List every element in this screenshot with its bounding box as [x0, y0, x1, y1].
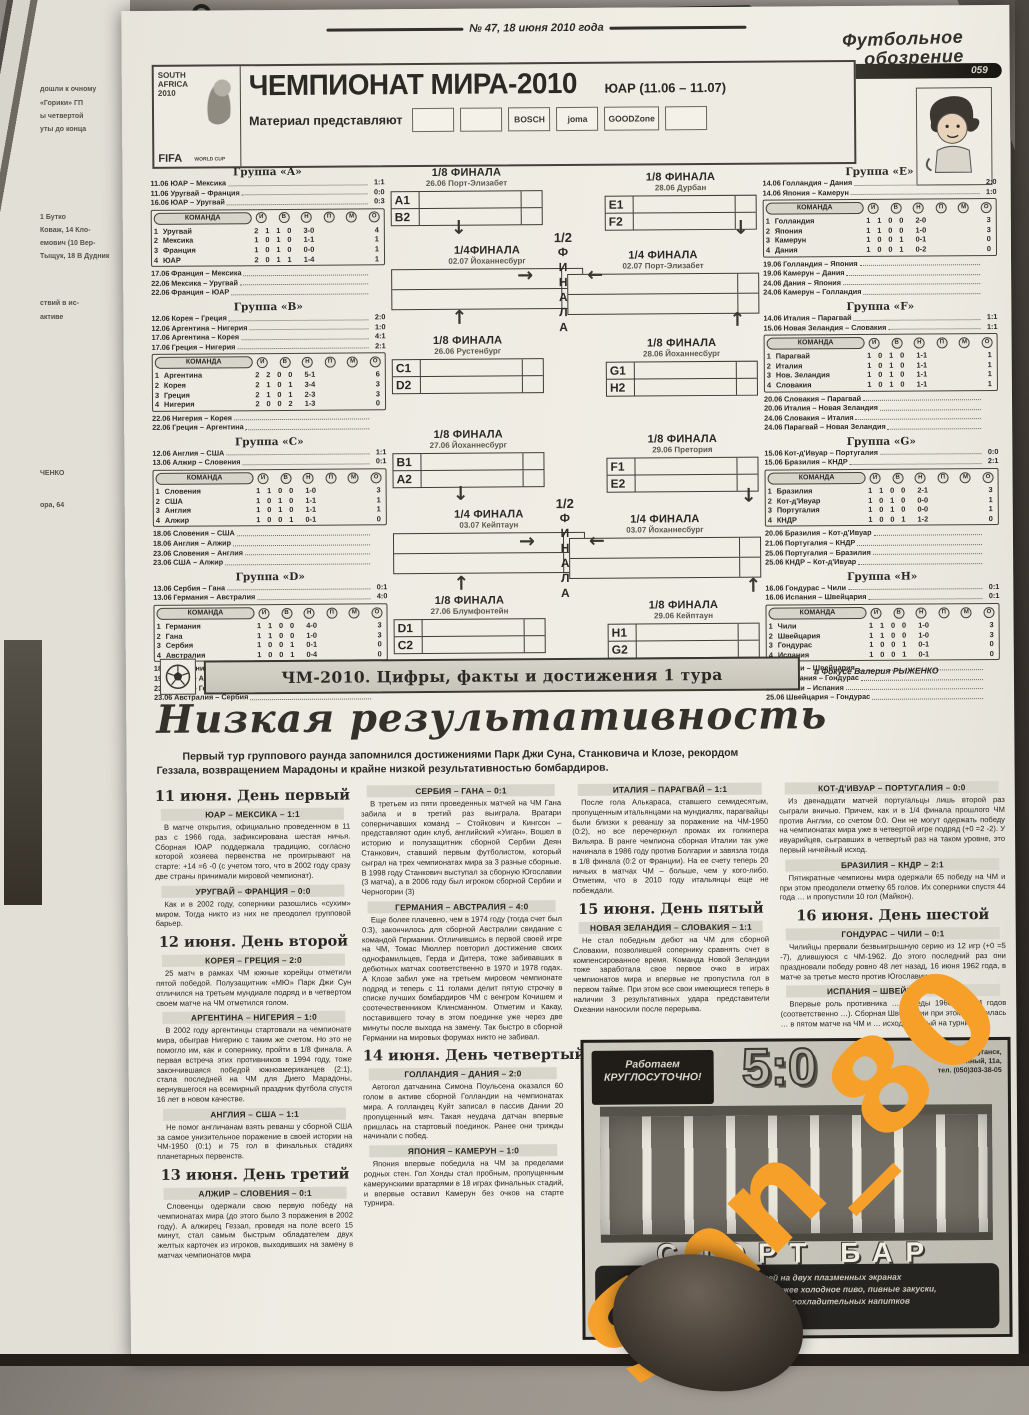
wins: 1 — [264, 486, 275, 496]
draws: 0 — [885, 225, 896, 235]
goal-difference: 1-1 — [908, 360, 936, 370]
stat-column-header: И — [869, 337, 880, 348]
bracket-slot-row: C2 — [395, 636, 545, 653]
masthead-box: SOUTH AFRICA 2010 FIFA WORLD CUP ЧЕМПИОН… — [152, 60, 857, 169]
team-rank: 1 — [766, 217, 775, 227]
article-intro: Первый тур группового раунда запомнился … — [156, 747, 766, 778]
team-rank: 1 — [154, 227, 163, 237]
goal-difference: 0-1 — [298, 640, 326, 650]
points: 3 — [935, 225, 994, 235]
article-column-2: СЕРБИЯ – ГАНА – 0:1 В третьем из пяти пр… — [361, 780, 564, 1259]
team-rank: 2 — [157, 631, 166, 641]
wins: 1 — [262, 226, 273, 236]
dotted-leader — [872, 698, 983, 700]
block-heading: СЕРБИЯ – ГАНА – 0:1 — [367, 784, 555, 797]
draws: 1 — [886, 351, 897, 361]
fixture-teams: Португалия – Бразилия — [785, 548, 871, 558]
block-heading: 16 июня. День шестой — [780, 906, 1006, 925]
draws: 1 — [886, 380, 897, 390]
group-section: Группа «А» 11.06 ЮАР – Мексика 1:1 11.06… — [150, 165, 385, 298]
standings-row: 4 Испания 1 0 0 1 0-1 0 — [769, 649, 997, 660]
sponsor-logo — [412, 108, 454, 132]
dotted-leader — [246, 428, 370, 430]
goal-difference: 1-3 — [296, 399, 324, 409]
draws: 0 — [274, 399, 285, 409]
goal-difference: 2-1 — [909, 485, 937, 495]
fixture-teams: Словения – Англия — [173, 548, 243, 558]
round-date-city: 26.06 Рустенбург — [392, 346, 544, 357]
dotted-leader — [860, 264, 980, 266]
match-date: 13.06 — [153, 593, 173, 603]
draws: 0 — [276, 640, 287, 650]
right-arrow-icon: → — [519, 530, 535, 552]
match-score: 4:1 — [371, 331, 386, 341]
slot-team-cell — [635, 362, 737, 379]
left-page-text-fragment: ЧЕНКО — [40, 468, 128, 479]
goal-difference: 2-0 — [907, 216, 935, 226]
knockout-bracket: 1/8 ФИНАЛА 26.06 Порт-Элизабет A1 B2 1/4… — [390, 163, 762, 674]
games-played: 2 — [252, 370, 263, 380]
team-column-header: КОМАНДА — [156, 472, 254, 485]
draws: 0 — [885, 216, 896, 226]
standings-header: КОМАНДА ИВНПМО — [768, 471, 996, 485]
match-teams: Корея – Греция — [171, 313, 226, 323]
block-heading: 11 июня. День первый — [155, 787, 350, 805]
stat-column-header: И — [258, 473, 269, 484]
slot-label: F1 — [607, 459, 635, 475]
fixture-teams: США – Алжир — [173, 558, 223, 568]
wins: 1 — [263, 380, 274, 390]
team-rank: 1 — [157, 622, 166, 632]
fixture-date: 18.06 — [153, 529, 173, 539]
fixture-teams: КНДР – Кот-д'Ивуар — [785, 557, 856, 567]
games-played: 2 — [252, 399, 263, 409]
block-body: Как и в 2002 году, соперники разошлись «… — [156, 898, 351, 929]
round-label: 1/8 ФИНАЛА — [606, 433, 758, 446]
stat-column-header: И — [258, 608, 269, 619]
wins: 0 — [875, 370, 886, 380]
logo-worldcup: WORLD CUP — [194, 156, 225, 162]
block-body: Япония впервые победила на ЧМ за предела… — [364, 1158, 564, 1208]
points: 0 — [937, 514, 996, 524]
draws: 1 — [887, 505, 898, 515]
games-played: 1 — [254, 631, 265, 641]
slot-team-cell — [421, 376, 523, 393]
block-heading: ГЕРМАНИЯ – АВСТРАЛИЯ – 4:0 — [368, 900, 556, 913]
stat-column-header: О — [983, 607, 994, 618]
points: 1 — [325, 495, 384, 505]
losses: 0 — [898, 495, 909, 505]
losses: 0 — [898, 505, 909, 515]
standings-table: КОМАНДА ИВНПМО 1 Уругвай 2 1 1 0 3-0 — [151, 208, 385, 267]
slot-team-cell — [568, 294, 738, 314]
points: 1 — [936, 350, 995, 360]
fixture-date: 20.06 — [765, 529, 785, 539]
points: 1 — [323, 254, 382, 264]
article-block: ЯПОНИЯ – КАМЕРУН – 1:0 Япония впервые по… — [363, 1144, 563, 1208]
team-name: Парагвай — [776, 351, 864, 361]
author-credit: в Фокусе Валерия РЫЖЕНКО — [814, 665, 994, 676]
rule-line — [610, 25, 747, 29]
round-date-city: 28.06 Йоханнесбург — [606, 349, 758, 360]
left-page-text-fragment: дошли к очному — [40, 84, 128, 95]
goal-difference: 0-1 — [910, 640, 938, 650]
slot-score-cell — [524, 470, 544, 486]
goal-difference: 0-1 — [297, 515, 325, 525]
goal-difference: 3-4 — [296, 380, 324, 390]
slot-label: E2 — [608, 476, 636, 492]
standings-header: КОМАНДА ИВНПМО — [155, 356, 383, 370]
stat-column-header: Н — [914, 337, 925, 348]
draws: 0 — [276, 631, 287, 641]
round-date-city: 29.06 Кейптаун — [608, 611, 760, 622]
fixture-teams: Парагвай – Новая Зеландия — [784, 422, 886, 432]
team-rank: 3 — [155, 390, 164, 400]
games-played: 1 — [865, 515, 876, 525]
article-block: УРУГВАЙ – ФРАНЦИЯ – 0:0 Как и в 2002 год… — [155, 884, 351, 929]
draws: 0 — [276, 650, 287, 660]
losses: 0 — [897, 351, 908, 361]
team-rank: 3 — [156, 506, 165, 516]
left-arrow-icon: ← — [587, 264, 603, 286]
standings-table: КОМАНДА ИВНПМО 1 Бразилия 1 1 0 0 2-1 — [765, 468, 999, 527]
stat-column-header: Н — [301, 212, 312, 223]
points: 6 — [324, 370, 383, 380]
slot-team-cell — [420, 191, 522, 208]
match-result-row: 15.06 Бразилия – КНДР 2:1 — [764, 456, 998, 467]
team-rank: 4 — [766, 246, 775, 256]
round-label: 1/8 ФИНАЛА — [606, 337, 758, 350]
match-score: 1:1 — [982, 312, 997, 322]
slot-team-cell — [421, 359, 523, 376]
wins: 0 — [877, 650, 888, 660]
match-date: 12.06 — [152, 449, 172, 459]
match-teams: Новая Зеландия – Словакия — [783, 322, 886, 332]
team-rank: 1 — [768, 487, 777, 497]
fixture-date: 25.06 — [765, 558, 785, 568]
standings-header: КОМАНДА ИВНПМО — [156, 471, 384, 485]
wins: 0 — [876, 515, 887, 525]
block-body: В третьем из пяти проведенных матчей на … — [361, 798, 562, 897]
dotted-leader — [861, 679, 983, 681]
team-name: Корея — [164, 380, 252, 390]
draws: 1 — [273, 245, 284, 255]
team-rank: 1 — [769, 622, 778, 632]
games-played: 2 — [252, 390, 263, 400]
fixture-date: 19.06 — [763, 259, 783, 269]
fixture-teams: Голландия – Япония — [783, 259, 858, 269]
groups-column-right: Группа «Е» 14.06 Голландия – Дания 2:0 1… — [762, 165, 1000, 706]
article-block: 13 июня. День третий — [157, 1165, 352, 1183]
bracket-block: 1/8 ФИНАЛА 28.06 Йоханнесбург G1 H2 — [606, 337, 758, 397]
match-teams: Италия – Парагвай — [783, 313, 851, 323]
losses: 0 — [897, 360, 908, 370]
wins: 1 — [874, 216, 885, 226]
wins: 0 — [874, 235, 885, 245]
games-played: 1 — [863, 235, 874, 245]
team-name: Италия — [776, 361, 864, 371]
article-block: 14 июня. День четвертый — [363, 1046, 563, 1064]
fixture-date: 22.06 — [152, 413, 172, 423]
round-date-city: 27.06 Йоханнесбург — [392, 440, 544, 451]
bracket-block: 1/8 ФИНАЛА 29.06 Кейптаун H1 G2 — [607, 599, 759, 659]
dotted-leader — [857, 544, 982, 546]
team-rank: 2 — [156, 496, 165, 506]
team-rank: 4 — [155, 400, 164, 410]
fixture-teams: Словения – США — [173, 529, 235, 539]
round-date-city: 28.06 Дурбан — [605, 183, 757, 194]
article-block: БРАЗИЛИЯ – КНДР – 2:1 Пятикратные чемпио… — [780, 858, 1006, 903]
losses: 0 — [284, 235, 295, 245]
games-played: 1 — [863, 226, 874, 236]
slot-score-cell — [736, 196, 756, 212]
dotted-leader — [888, 428, 982, 430]
block-body: 25 матч в рамках ЧМ южные корейцы отмети… — [156, 968, 352, 1009]
bracket-box: F1 E2 — [606, 457, 758, 493]
slot-label: B2 — [392, 209, 420, 225]
slot-score-cell — [737, 458, 757, 474]
team-column-header: КОМАНДА — [154, 212, 252, 225]
draws: 0 — [274, 389, 285, 399]
block-heading: КОТ-Д'ИВУАР – ПОРТУГАЛИЯ – 0:0 — [785, 781, 999, 794]
team-rank: 4 — [767, 380, 776, 390]
banner-title: ЧМ-2010. Цифры, факты и достижения 1 тур… — [281, 664, 722, 686]
block-heading: 15 июня. День пятый — [573, 900, 769, 918]
match-teams: Алжир – Словения — [172, 458, 240, 468]
match-date: 11.06 — [151, 188, 171, 198]
fixture-date: 22.06 — [151, 288, 171, 298]
rule-line — [326, 27, 463, 31]
games-played: 1 — [866, 640, 877, 650]
block-body — [155, 806, 350, 807]
dotted-leader — [244, 274, 369, 276]
team-rank: 1 — [156, 487, 165, 497]
slot-team-cell — [420, 208, 522, 225]
stat-column-header: Н — [304, 607, 315, 618]
match-teams: Гондурас – Чили — [785, 583, 846, 593]
match-teams: Кот-д'Ивуар – Португалия — [784, 448, 878, 458]
goal-difference: 1-0 — [910, 630, 938, 640]
article-block: 15 июня. День пятый — [573, 900, 769, 918]
stat-column-header: В — [279, 357, 290, 368]
team-name: Греция — [164, 390, 252, 400]
block-heading: 13 июня. День третий — [157, 1165, 352, 1183]
folded-left-page: дошли к очному«Горики» ГПы четвертойуты … — [0, 0, 130, 1366]
down-arrow-icon: ↓ — [451, 217, 467, 239]
stat-column-header: П — [323, 212, 334, 223]
slot-team-cell — [394, 533, 564, 553]
fixture-teams: Бразилия – Кот-д'Ивуар — [785, 528, 872, 538]
sponsor-logo: GOODZone — [604, 106, 658, 130]
dotted-leader — [874, 534, 982, 536]
block-heading: ГОНДУРАС – ЧИЛИ – 0:1 — [786, 927, 1000, 940]
losses: 1 — [899, 640, 910, 650]
wins: 0 — [875, 351, 886, 361]
match-score: 2:0 — [981, 177, 996, 187]
team-rank: 2 — [769, 631, 778, 641]
dotted-leader — [257, 598, 370, 600]
sponsor-logos: BOSCHjomaGOODZone — [412, 106, 706, 132]
goal-difference: 1-2 — [909, 514, 937, 524]
left-page-text-fragment: «Горики» ГП — [40, 98, 128, 109]
article-block: 12 июня. День второй — [156, 933, 351, 951]
games-played: 1 — [863, 216, 874, 226]
article-block: НОВАЯ ЗЕЛАНДИЯ – СЛОВАКИЯ – 1:1 Не стал … — [573, 921, 770, 1015]
match-date: 13.06 — [152, 458, 172, 468]
wins: 0 — [264, 496, 275, 506]
issue-line: № 47, 18 июня 2010 года — [326, 21, 746, 36]
round-label: 1/8 ФИНАЛА — [393, 594, 545, 607]
block-body: Не помог англичанам взять реванш у сборн… — [157, 1121, 353, 1162]
match-score: 0:1 — [372, 582, 387, 592]
goal-difference: 0-1 — [907, 235, 935, 245]
bracket-slot-row: B2 — [392, 208, 542, 225]
stat-column-header: В — [891, 337, 902, 348]
standings-row: 4 ЮАР 2 0 1 1 1-4 1 — [154, 254, 382, 265]
up-arrow-icon: ↑ — [745, 575, 761, 597]
draws: 0 — [888, 621, 899, 631]
match-teams: Германия – Австралия — [173, 593, 255, 603]
group-section: Группа «Е» 14.06 Голландия – Дания 2:0 1… — [762, 165, 997, 298]
stat-column-header: Н — [916, 607, 927, 618]
bracket-slot-row: G1 — [607, 362, 757, 380]
stat-column-header: Н — [303, 472, 314, 483]
points: 1 — [936, 360, 995, 370]
games-played: 1 — [864, 370, 875, 380]
draws: 1 — [273, 226, 284, 236]
losses: 1 — [898, 514, 909, 524]
draws: 0 — [275, 515, 286, 525]
match-result-row: 15.06 Новая Зеландия – Словакия 1:1 — [763, 322, 997, 333]
slot-score-cell — [740, 538, 760, 557]
stat-column-header: В — [280, 473, 291, 484]
match-date: 15.06 — [763, 323, 783, 333]
losses: 0 — [896, 225, 907, 235]
fixture-date: 20.06 — [764, 394, 784, 404]
losses: 0 — [284, 226, 295, 236]
match-score: 0:3 — [370, 196, 385, 206]
block-body: После гола Алькараса, ставшего семидесят… — [572, 797, 769, 896]
team-name: Аргентина — [164, 371, 252, 381]
stat-column-header: В — [890, 202, 901, 213]
left-page-photo-fragment — [4, 640, 42, 905]
team-name: Словакия — [776, 380, 864, 390]
points: 3 — [324, 379, 383, 389]
slot-score-cell — [739, 624, 759, 640]
group-section: Группа «F» 14.06 Италия – Парагвай 1:1 1… — [763, 300, 998, 433]
slot-team-cell — [394, 553, 564, 573]
draws: 0 — [888, 630, 899, 640]
slot-label: D1 — [395, 620, 423, 636]
dotted-leader — [237, 348, 368, 350]
standings-header: КОМАНДА ИВНПМО — [156, 606, 384, 620]
goal-difference: 1-1 — [908, 351, 936, 361]
draws: 0 — [885, 235, 896, 245]
team-name: Гондурас — [778, 640, 866, 650]
slot-score-cell — [525, 619, 545, 635]
losses: 1 — [287, 650, 298, 660]
match-teams: Бразилия – КНДР — [784, 458, 847, 468]
block-body — [156, 952, 351, 953]
slot-team-cell — [637, 641, 739, 658]
match-score: 0:1 — [984, 591, 999, 601]
block-body — [158, 1184, 353, 1185]
block-body: В 2002 году аргентинцы стартовали на чем… — [156, 1025, 352, 1105]
match-score: 1:1 — [369, 177, 384, 187]
team-name: Нигерия — [164, 399, 252, 409]
fixture-teams: Камерун – Голландия — [783, 287, 861, 297]
dotted-leader — [241, 338, 368, 340]
groups-column-left: Группа «А» 11.06 ЮАР – Мексика 1:1 11.06… — [150, 165, 388, 706]
fixture-row: 24.06 Парагвай – Новая Зеландия — [764, 421, 998, 432]
goal-difference: 0-0 — [909, 495, 937, 505]
group-section: Группа «С» 12.06 Англия – США 1:1 13.06 … — [152, 435, 387, 568]
wins: 0 — [875, 380, 886, 390]
goal-difference: 1-1 — [908, 370, 936, 380]
dotted-leader — [242, 463, 369, 465]
dotted-leader — [234, 419, 369, 421]
stat-column-header: В — [278, 212, 289, 223]
draws: 1 — [887, 495, 898, 505]
bracket-slot-row: C1 — [393, 359, 543, 377]
draws: 0 — [275, 486, 286, 496]
dotted-leader — [843, 283, 980, 285]
standings-table: КОМАНДА ИВНПМО 1 Аргентина 2 2 0 0 5-1 — [152, 353, 386, 412]
points: 1 — [937, 495, 996, 505]
fixture-row: 22.06 Франция – ЮАР — [151, 287, 385, 298]
standings-table: КОМАНДА ИВНПМО 1 Чили 1 1 0 0 1-0 — [765, 603, 999, 662]
points: 1 — [325, 505, 384, 515]
games-played: 2 — [251, 226, 262, 236]
stat-column-header: М — [960, 472, 971, 483]
standings-row: 4 Нигерия 2 0 0 2 1-3 0 — [155, 398, 383, 409]
team-rank: 2 — [766, 226, 775, 236]
section-banner: ЧМ-2010. Цифры, факты и достижения 1 тур… — [204, 656, 800, 694]
losses: 1 — [287, 640, 298, 650]
fixture-date: 23.06 — [153, 558, 173, 568]
dotted-leader — [227, 203, 368, 205]
wins: 0 — [263, 399, 274, 409]
points: 0 — [935, 244, 994, 254]
games-played: 1 — [863, 245, 874, 255]
group-section: Группа «Н» 16.06 Гондурас – Чили 0:1 16.… — [765, 570, 1000, 703]
wins: 1 — [876, 486, 887, 496]
goal-difference: 1-1 — [295, 235, 323, 245]
slot-team-cell — [421, 453, 523, 470]
team-rank: 4 — [154, 255, 163, 265]
goal-difference: 0-2 — [907, 244, 935, 254]
group-section: Группа «G» 15.06 Кот-д'Ивуар – Португали… — [764, 435, 999, 568]
games-played: 1 — [254, 621, 265, 631]
team-name: Дания — [775, 245, 863, 255]
team-column-header: КОМАНДА — [156, 607, 254, 620]
team-rank: 1 — [767, 352, 776, 362]
stat-column-header: Н — [915, 472, 926, 483]
match-teams: Япония – Камерун — [783, 188, 849, 198]
match-teams: ЮАР – Уругвай — [171, 198, 225, 208]
bracket-box: G1 H2 — [606, 361, 758, 397]
open-24h-badge: Работаем КРУГЛОСУТОЧНО! — [592, 1050, 714, 1105]
team-rank: 2 — [155, 381, 164, 391]
dotted-leader — [847, 274, 981, 276]
match-result-row: 17.06 Греция – Нигерия 2:1 — [152, 341, 386, 352]
games-played: 2 — [252, 380, 263, 390]
games-played: 1 — [865, 496, 876, 506]
match-date: 16.06 — [765, 583, 785, 593]
draws: 1 — [273, 235, 284, 245]
fixture-teams: Камерун – Дания — [783, 268, 844, 278]
slot-label: A2 — [394, 471, 422, 487]
